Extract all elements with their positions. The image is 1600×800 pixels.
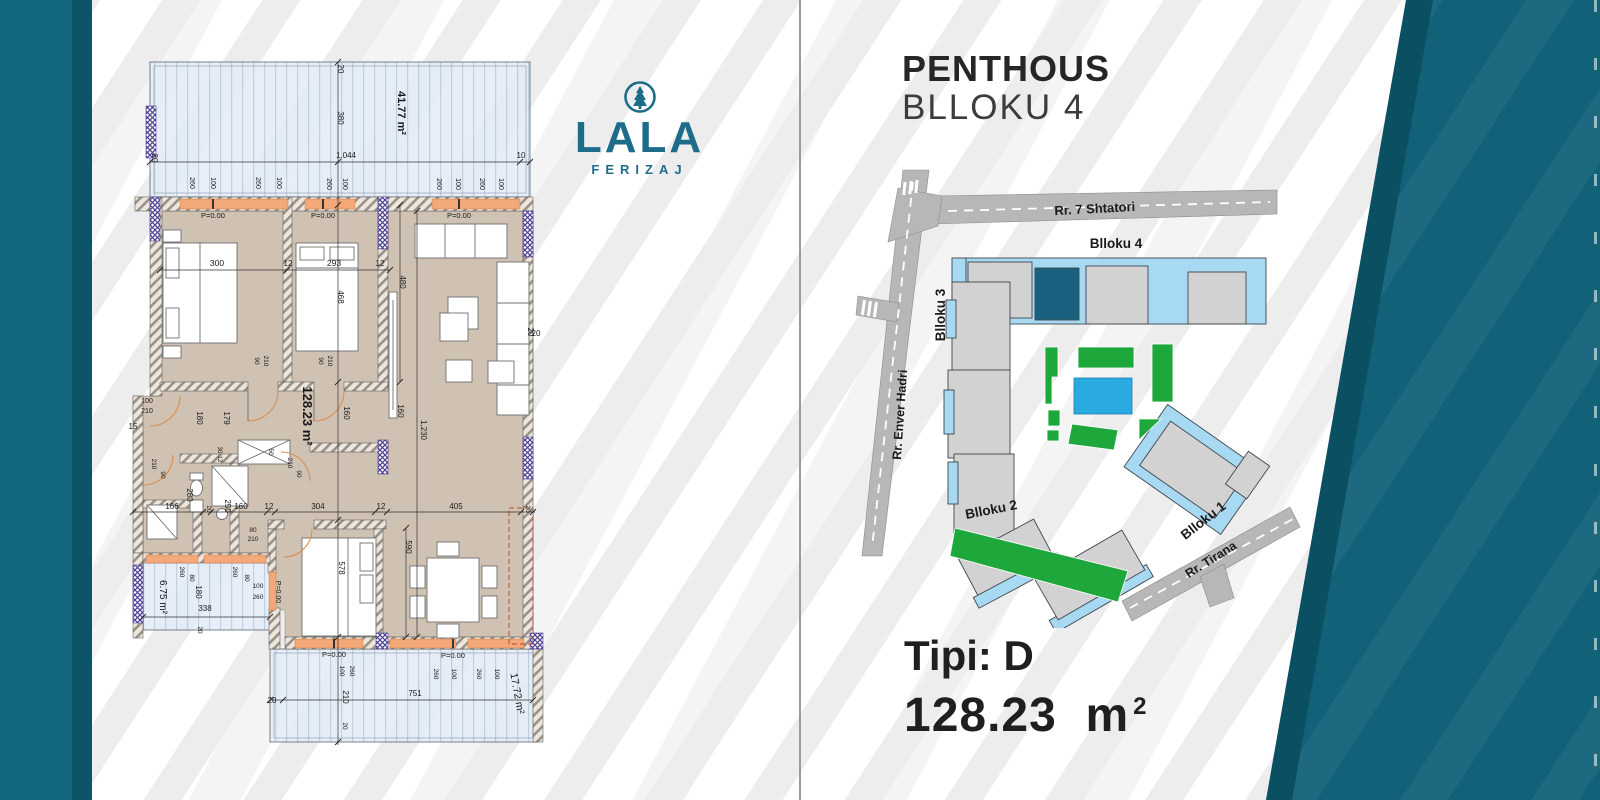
floorplan-dimension-label: 160	[342, 406, 351, 420]
floorplan-dimension-label: 180	[194, 585, 203, 599]
floorplan-dimension-label: 80	[188, 574, 195, 582]
blloku1-buildings	[1124, 398, 1270, 535]
floorplan-dimension-label: 380	[336, 111, 345, 125]
floorplan-dimension-label: 210	[262, 356, 269, 367]
floorplan-dimension-label: 260	[432, 669, 439, 680]
floorplan-dimension-label: 260	[254, 177, 261, 189]
floorplan-dimension-label: 90	[295, 470, 302, 478]
floorplan-dimension-label: P=0.00	[447, 211, 471, 220]
floorplan-dimension-label: 100	[209, 177, 216, 189]
floorplan-dimension-label: 128.23 m²	[300, 386, 315, 446]
floorplan-dimension-label: 210	[286, 458, 293, 469]
floorplan-dimension-label: 20	[268, 696, 277, 705]
company-logo: LALA FERIZAJ	[557, 80, 722, 177]
pine-tree-circle-icon	[623, 80, 657, 114]
floorplan-dimension-label: 90	[253, 357, 260, 365]
site-map: Rr. 7 ShtatoriRr. Enver HadriRr. TiranaB…	[840, 158, 1310, 628]
bed-3	[302, 538, 376, 636]
floorplan-dimension-label: 210	[141, 408, 153, 415]
floorplan-dimension-label: 20	[336, 65, 345, 74]
floorplan-dimension-label: 260	[478, 178, 485, 190]
title-line2: BLLOKU 4	[902, 89, 1110, 127]
floorplan-dimension-label: 1,044	[336, 151, 357, 160]
floorplan-dimension-label: 293	[327, 258, 341, 268]
logo-name: LALA	[557, 116, 722, 160]
floorplan-dimension-label: 590	[404, 540, 413, 554]
floorplan-dimension-label: 480	[398, 275, 407, 289]
floorplan-dimension-label: 160	[234, 502, 248, 511]
floorplan-dimension-label: 100	[341, 178, 348, 190]
logo-city: FERIZAJ	[557, 162, 722, 177]
sink	[190, 500, 203, 512]
floorplan-dimension-label: 90	[317, 357, 324, 365]
floorplan-dimension-label: 80	[249, 527, 257, 534]
floorplan-dimension-label: 166	[165, 502, 179, 511]
type-label: Tipi: D	[904, 632, 1148, 680]
floorplan-dimension-label: 6.75 m²	[157, 580, 168, 615]
floorplan-dimension-label: 260	[435, 178, 442, 190]
floorplan-dimension-label: 15	[129, 422, 138, 431]
site-map-labels: Rr. 7 ShtatoriRr. Enver HadriRr. TiranaB…	[890, 199, 1240, 581]
floorplan-dimension-label: 280	[185, 488, 194, 502]
floorplan-dimension-label: 468	[336, 290, 345, 304]
floorplan-dimension-label: 20	[196, 626, 203, 634]
floorplan-dimension-label: P=0.00	[201, 211, 225, 220]
floorplan-dimension-label: 260	[253, 594, 264, 601]
floorplan-dimension-label: 100	[493, 669, 500, 680]
floorplan-dimension-label: 100	[275, 177, 282, 189]
floorplan-dimension-label: 30	[216, 447, 222, 454]
sitemap-label: Blloku 3	[933, 288, 948, 341]
area-sup: 2	[1133, 693, 1147, 720]
area-value: 128.23	[904, 689, 1057, 742]
bed-1	[163, 230, 237, 358]
floorplan-dimension-label: 300	[210, 258, 224, 268]
floorplan-dimension-label: 405	[449, 502, 463, 511]
floorplan-dimension-label: 260	[348, 666, 355, 677]
floorplan-dimension-label: 210	[341, 690, 350, 704]
sitemap-label: Blloku 4	[1090, 236, 1143, 251]
teal-left-bar-edge	[72, 0, 92, 800]
floorplan-dimension-label: 100	[141, 398, 153, 405]
floorplan-dimension-label: 250	[223, 499, 232, 513]
floorplan-dimension-label: 578	[337, 561, 346, 575]
floorplan-dimension-label: 12	[265, 502, 274, 511]
brochure-page: { "page": { "stripe_color": "#ededed", "…	[0, 0, 1600, 800]
floorplan-dimension-label: 260	[231, 567, 238, 578]
page-title: PENTHOUS BLLOKU 4	[902, 50, 1110, 127]
tv-unit	[389, 292, 397, 418]
floorplan-dimension-label: 12	[377, 502, 386, 511]
floorplan-dimension-label: 10	[517, 151, 526, 160]
floorplan-dimension-label: 100	[450, 669, 457, 680]
type-area: 128.23 m2	[904, 688, 1148, 743]
floorplan-dimension-label: 751	[408, 689, 422, 698]
terrace-top	[150, 62, 530, 197]
floorplan-dimension-label: 20	[205, 505, 212, 513]
floorplan-dimension-label: P=0.00	[311, 211, 335, 220]
floorplan-dimension-label: 12	[376, 259, 385, 268]
floorplan-dimension-label: 12	[216, 456, 222, 463]
floorplan-dimension-label: 20	[532, 329, 541, 338]
highlighted-building	[1035, 268, 1079, 320]
floorplan-dimension-label: 260	[188, 177, 195, 189]
floorplan-dimension-label: 180	[195, 411, 204, 425]
floorplan-dimension-label: 50	[267, 448, 274, 456]
floorplan-dimension-label: 160	[396, 404, 405, 418]
floorplan-dimension-label: 90	[159, 471, 166, 479]
terrace-bottom	[270, 649, 537, 742]
teal-left-bar	[0, 0, 72, 800]
floorplan-dimension-label: 179	[222, 411, 231, 425]
floorplan-dimension-label: 20	[150, 154, 159, 163]
floorplan-dimension-label: 100	[454, 178, 461, 190]
area-unit: m	[1085, 689, 1129, 742]
floorplan-dimension-label: 304	[311, 502, 325, 511]
floorplan-dimension-label: 260	[178, 567, 185, 578]
title-line1: PENTHOUS	[902, 50, 1110, 89]
floorplan-dimension-label: 210	[326, 356, 333, 367]
floorplan-dimension-label: P=0.00	[441, 651, 465, 660]
floorplan-dimension-label: 260	[475, 669, 482, 680]
floorplan-dimension-label: 20	[524, 505, 531, 513]
floorplan-dimension-label: 210	[150, 459, 157, 470]
floorplan-dimension-label: 41.77 m²	[395, 91, 407, 135]
floorplan-dimension-label: 80	[243, 574, 250, 582]
type-block: Tipi: D 128.23 m2	[904, 632, 1148, 743]
floorplan-dimension-label: 100	[253, 583, 264, 590]
floorplan-dimension-label: P=0.00	[274, 581, 281, 603]
floorplan-dimension-label: 100	[338, 666, 345, 677]
floor-plan: 41.77 m²128.23 m²6.75 m²17.72 m²380201,0…	[125, 50, 550, 760]
floorplan-dimension-label: 338	[198, 604, 212, 613]
floorplan-dimension-label: 260	[325, 178, 332, 190]
floorplan-dimension-label: 20	[341, 722, 348, 730]
floorplan-dimension-label: 1,230	[419, 420, 428, 441]
floorplan-dimension-label: 12	[284, 259, 293, 268]
page-fold-line	[799, 0, 801, 800]
floorplan-dimension-label: P=0.00	[322, 650, 346, 659]
floorplan-dimension-label: 210	[248, 536, 259, 543]
pool	[1074, 378, 1132, 414]
floorplan-dimension-label: 100	[497, 178, 504, 190]
